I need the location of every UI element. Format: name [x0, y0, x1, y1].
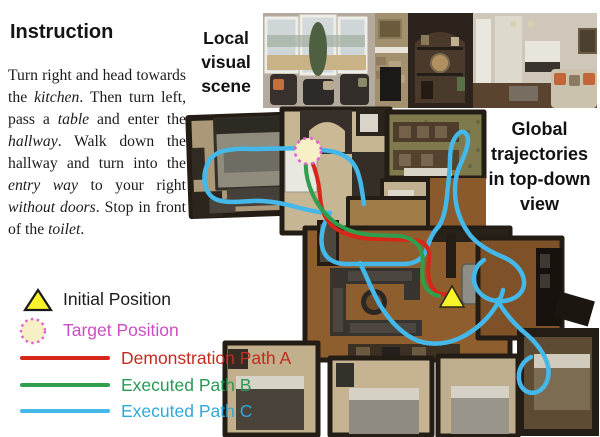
target-position-icon	[19, 317, 47, 345]
legend-label: Executed Path B	[121, 375, 251, 396]
legend-label: Demonstration Path A	[121, 348, 291, 369]
legend-label: Initial Position	[63, 289, 171, 310]
path-c-line-icon	[20, 409, 110, 413]
target-position-marker	[295, 138, 321, 164]
initial-position-icon	[22, 288, 54, 312]
legend-label: Target Position	[63, 320, 179, 341]
legend-label: Executed Path C	[121, 401, 252, 422]
figure-root: Instruction Turn right and head towards …	[0, 0, 600, 437]
path-a-line-icon	[20, 356, 110, 360]
floorplan-map	[0, 0, 600, 437]
path-b-line-icon	[20, 383, 110, 387]
